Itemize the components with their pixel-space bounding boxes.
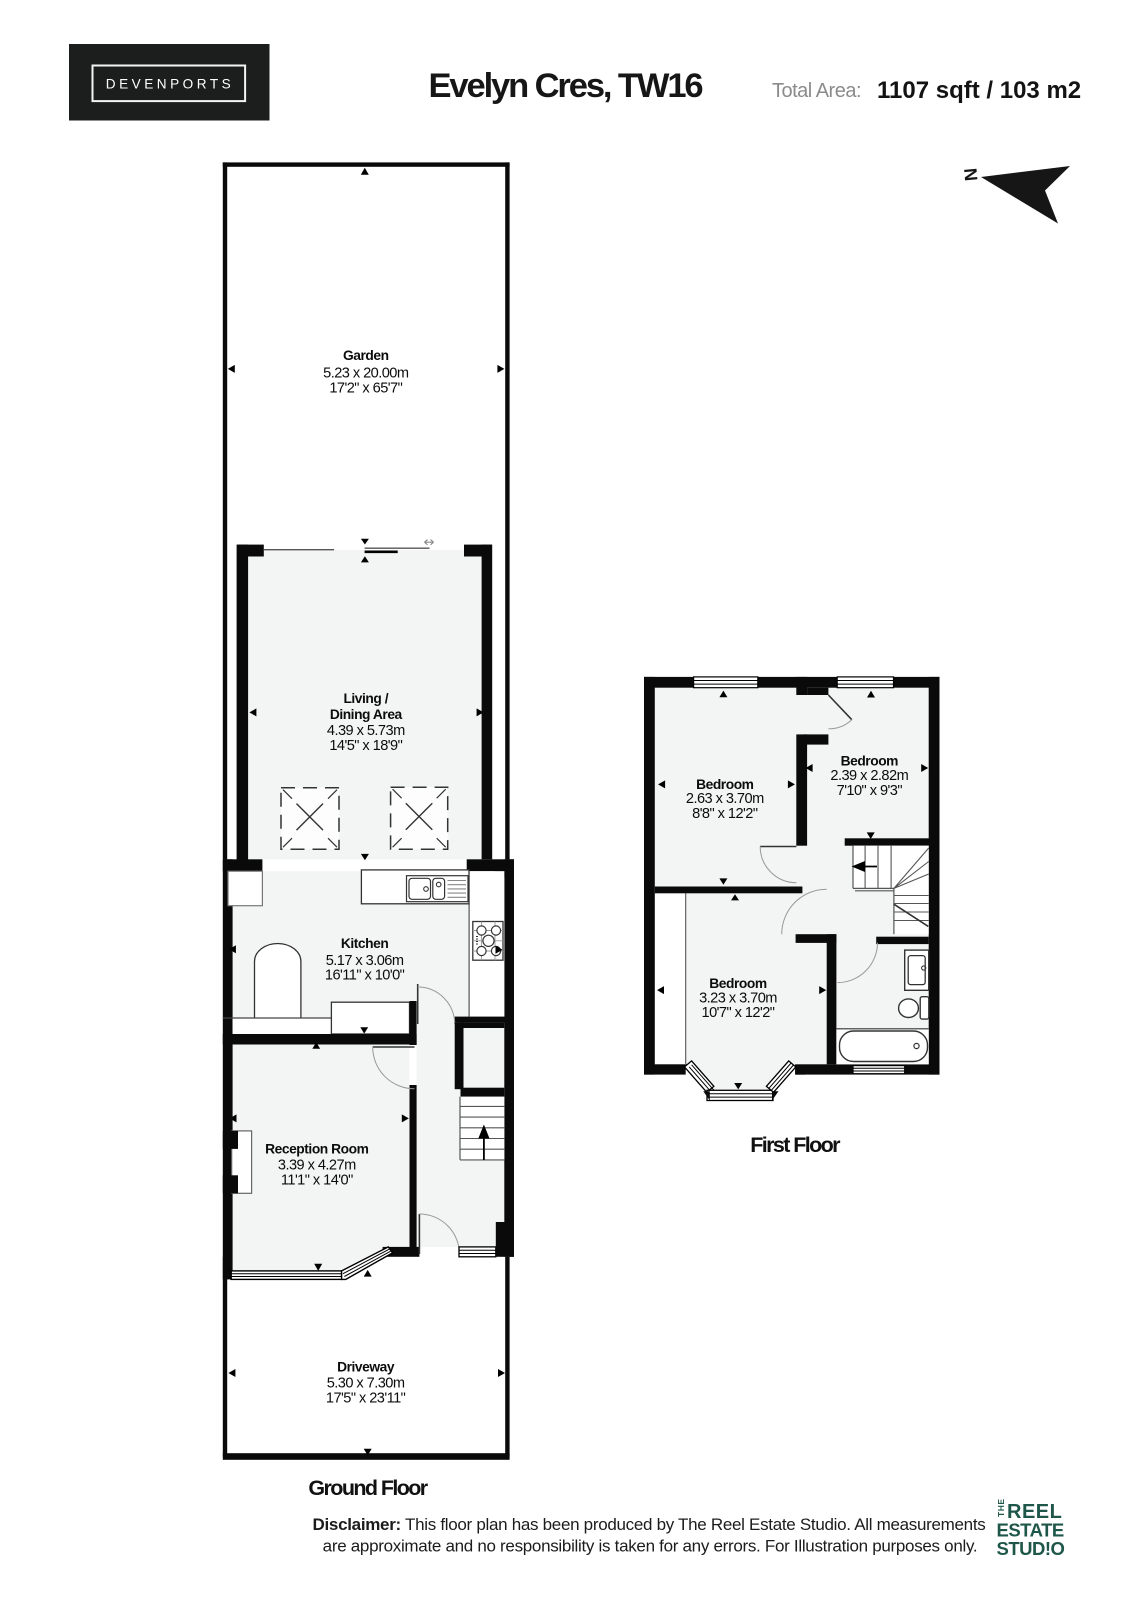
svg-text:STUD!O: STUD!O bbox=[997, 1538, 1065, 1559]
svg-text:3.39 x 4.27m: 3.39 x 4.27m bbox=[278, 1158, 356, 1174]
svg-text:Disclaimer: This floor plan ha: Disclaimer: This floor plan has been pro… bbox=[313, 1515, 986, 1534]
svg-text:Living /: Living / bbox=[343, 691, 388, 706]
svg-text:Garden: Garden bbox=[343, 348, 389, 363]
svg-text:N: N bbox=[960, 167, 981, 182]
svg-text:THE: THE bbox=[996, 1499, 1006, 1518]
svg-text:17'2" x 65'7": 17'2" x 65'7" bbox=[329, 380, 402, 396]
svg-text:1107 sqft / 103 m2: 1107 sqft / 103 m2 bbox=[877, 77, 1081, 104]
svg-text:DEVENPORTS: DEVENPORTS bbox=[106, 77, 234, 92]
svg-text:5.17 x 3.06m: 5.17 x 3.06m bbox=[326, 953, 404, 969]
svg-text:14'5" x 18'9": 14'5" x 18'9" bbox=[329, 738, 402, 754]
svg-text:Ground Floor: Ground Floor bbox=[308, 1476, 428, 1500]
svg-text:Total Area:: Total Area: bbox=[772, 80, 861, 102]
svg-text:2.39 x 2.82m: 2.39 x 2.82m bbox=[830, 768, 908, 784]
svg-text:Bedroom: Bedroom bbox=[696, 777, 754, 792]
svg-text:3.23 x 3.70m: 3.23 x 3.70m bbox=[699, 990, 777, 1006]
svg-text:Evelyn Cres, TW16: Evelyn Cres, TW16 bbox=[428, 67, 702, 105]
svg-text:10'7" x 12'2": 10'7" x 12'2" bbox=[702, 1005, 775, 1021]
svg-text:17'5" x 23'11": 17'5" x 23'11" bbox=[326, 1391, 406, 1407]
svg-text:First Floor: First Floor bbox=[750, 1133, 841, 1157]
svg-text:7'10" x 9'3": 7'10" x 9'3" bbox=[837, 783, 903, 799]
svg-text:Driveway: Driveway bbox=[337, 1360, 395, 1375]
svg-text:are approximate and no respons: are approximate and no responsibility is… bbox=[323, 1537, 978, 1556]
svg-text:Bedroom: Bedroom bbox=[841, 754, 899, 769]
svg-text:Dining Area: Dining Area bbox=[330, 707, 403, 722]
svg-text:5.30 x 7.30m: 5.30 x 7.30m bbox=[327, 1376, 405, 1392]
svg-text:5.23 x 20.00m: 5.23 x 20.00m bbox=[323, 366, 409, 382]
svg-text:Bedroom: Bedroom bbox=[709, 976, 767, 991]
svg-text:11'1" x 14'0": 11'1" x 14'0" bbox=[281, 1173, 353, 1189]
svg-text:2.63 x 3.70m: 2.63 x 3.70m bbox=[686, 791, 764, 807]
svg-text:16'11" x 10'0": 16'11" x 10'0" bbox=[325, 968, 405, 984]
svg-text:4.39 x 5.73m: 4.39 x 5.73m bbox=[327, 723, 405, 739]
svg-text:8'8" x 12'2": 8'8" x 12'2" bbox=[692, 806, 758, 822]
svg-text:Reception Room: Reception Room bbox=[265, 1142, 368, 1157]
svg-text:Kitchen: Kitchen bbox=[341, 936, 388, 951]
